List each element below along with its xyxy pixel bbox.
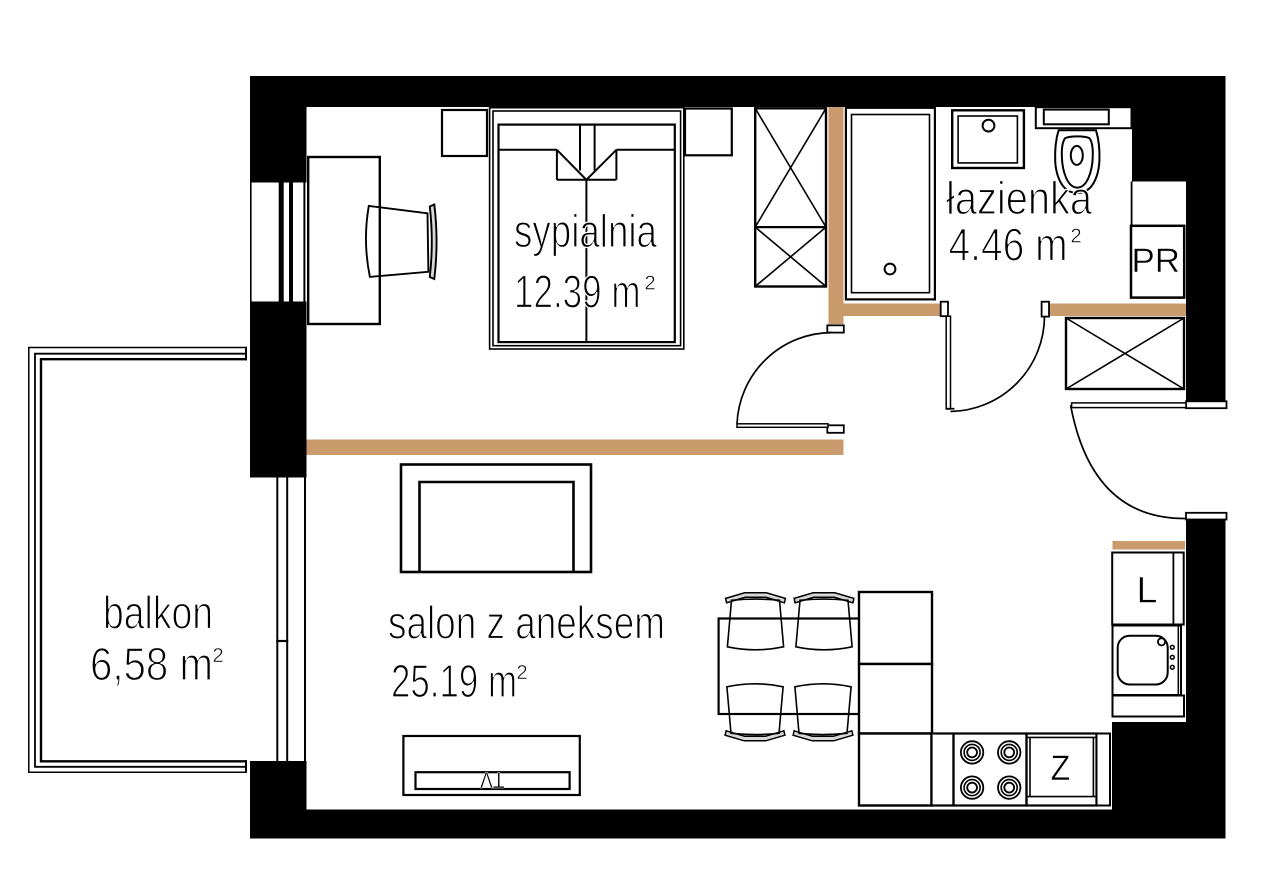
svg-text:12.39 m: 12.39 m — [514, 267, 641, 318]
svg-text:25.19 m: 25.19 m — [391, 657, 517, 708]
svg-text:6,58 m: 6,58 m — [90, 640, 213, 691]
svg-text:sypialnia: sypialnia — [514, 207, 658, 258]
svg-text:balkon: balkon — [103, 588, 213, 639]
svg-text:L: L — [1137, 569, 1158, 611]
svg-text:2: 2 — [1071, 226, 1082, 248]
svg-text:2: 2 — [517, 662, 528, 684]
svg-text:TV: TV — [480, 768, 505, 793]
svg-text:łazienka: łazienka — [946, 174, 1093, 225]
svg-text:salon z aneksem: salon z aneksem — [388, 598, 665, 649]
svg-text:4.46 m: 4.46 m — [949, 220, 1068, 271]
svg-text:2: 2 — [645, 273, 656, 295]
svg-text:Z: Z — [1051, 749, 1071, 788]
svg-text:PR: PR — [1132, 242, 1181, 280]
svg-text:2: 2 — [213, 645, 224, 667]
